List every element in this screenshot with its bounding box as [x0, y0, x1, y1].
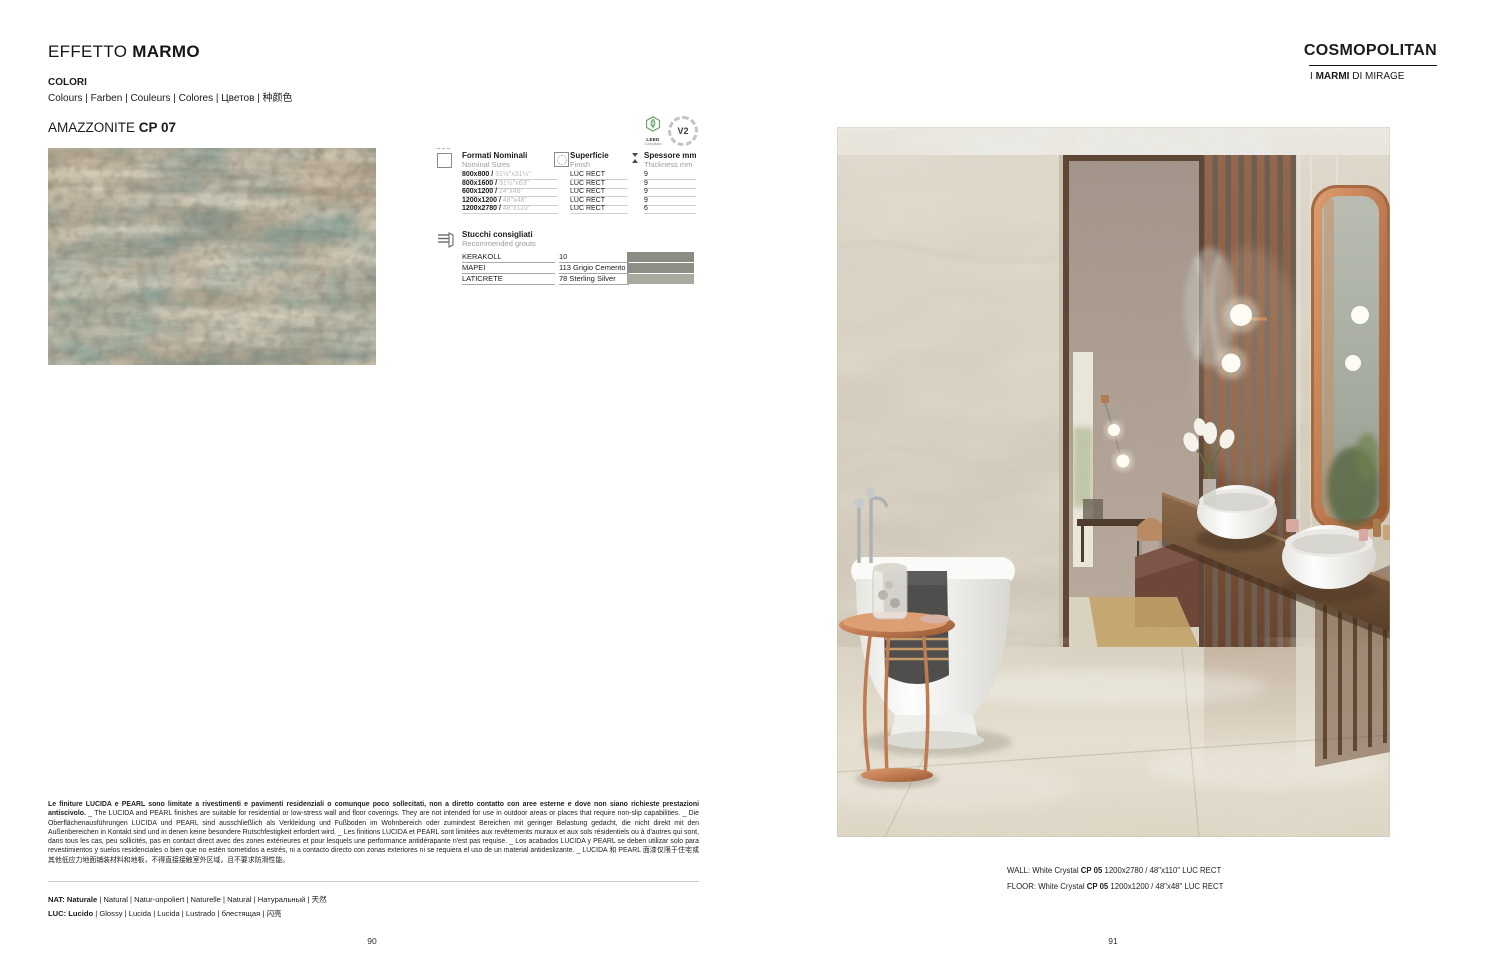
size-in: 48"x110" — [503, 205, 530, 212]
page-number-right: 91 — [1083, 936, 1143, 946]
collection-subtitle: I MARMI DI MIRAGE — [1310, 71, 1404, 82]
size-in: 48"x48" — [503, 197, 527, 204]
legend-luc-bold: LUC: Lucido — [48, 909, 93, 918]
page-title-bold: MARMO — [132, 42, 200, 61]
trowel-icon — [437, 231, 455, 249]
caption-floor-pre: FLOOR: White Crystal — [1007, 882, 1087, 891]
col-sizes-subtitle: Nominal Sizes — [462, 161, 510, 170]
caption-floor-post: 1200x1200 / 48"x48" LUC RECT — [1108, 882, 1223, 891]
size-mm: 800x800 / — [462, 171, 495, 178]
col-thickness-title: Spessore mm — [644, 152, 696, 160]
grout-row: MAPEI 113 Grigio Cemento — [437, 263, 695, 274]
finish-disclaimer: Le finiture LUCIDA e PEARL sono limitate… — [48, 800, 699, 865]
grout-row: LATICRETE 78 Sterling Silver — [437, 274, 695, 285]
grout-color-swatch — [627, 274, 694, 284]
legend-nat-bold: NAT: Naturale — [48, 895, 97, 904]
grout-row: KERAKOLL 10 — [437, 252, 695, 263]
col-thickness-subtitle: Thickness mm — [644, 161, 692, 170]
size-square-icon — [437, 153, 452, 168]
grouts-title: Stucchi consigliati — [462, 231, 533, 239]
thickness: 6 — [644, 205, 696, 214]
legend-nat: NAT: Naturale | Natural | Natur-unpolier… — [48, 893, 699, 907]
sizes-table: Formati Nominali Nominal Sizes Superfici… — [437, 148, 697, 218]
grouts-subtitle: Recommended grouts — [462, 240, 536, 249]
catalog-spread: { "left": { "title_regular": "EFFETTO ",… — [0, 0, 1485, 968]
size-mm: 600x1200 / — [462, 188, 499, 195]
amazzonite-marble-swatch — [48, 148, 376, 365]
caption-wall: WALL: White Crystal CP 05 1200x2780 / 48… — [1007, 863, 1223, 879]
table-row: 1200x1200 / 48"x48" LUC RECT 9 — [437, 197, 697, 206]
col-finish-subtitle: Finish — [570, 161, 590, 170]
caption-wall-code: CP 05 — [1081, 866, 1103, 875]
grout-code: 10 — [559, 252, 629, 263]
photo-grain — [837, 127, 1390, 837]
collection-title: COSMOPOLITAN — [1304, 42, 1437, 60]
finish-legend: NAT: Naturale | Natural | Natur-unpolier… — [48, 893, 699, 921]
marble-texture — [48, 148, 376, 365]
table-row: 800x800 / 31½"x31½" LUC RECT 9 — [437, 171, 697, 180]
v2-badge: V2 — [668, 116, 698, 146]
grout-brand: KERAKOLL — [462, 252, 555, 263]
colori-translations: Colours | Farben | Couleurs | Colores | … — [48, 89, 293, 104]
photo-captions: WALL: White Crystal CP 05 1200x2780 / 48… — [1007, 863, 1223, 895]
product-name: AMAZZONITE CP 07 — [48, 120, 176, 135]
size-in: 31½"x63" — [499, 180, 529, 187]
subtitle-bold: MARMI — [1316, 71, 1350, 82]
page-title-regular: EFFETTO — [48, 42, 132, 61]
legend-divider — [48, 881, 699, 882]
table-row: 800x1600 / 31½"x63" LUC RECT 9 — [437, 180, 697, 189]
grout-color-swatch — [627, 263, 694, 273]
grout-code: 113 Grigio Cemento — [559, 263, 629, 274]
measure-dash-icon — [437, 148, 450, 149]
subtitle-post: DI MIRAGE — [1349, 71, 1404, 82]
col-finish-title: Superficie — [570, 152, 609, 160]
colori-label: COLORI — [48, 77, 87, 88]
caption-wall-post: 1200x2780 / 48"x110" LUC RECT — [1102, 866, 1221, 875]
page-title: EFFETTO MARMO — [48, 42, 200, 62]
size-mm: 1200x2780 / — [462, 205, 503, 212]
legend-luc: LUC: Lucido | Glossy | Lucida | Lucida |… — [48, 907, 699, 921]
v2-label: V2 — [677, 126, 688, 136]
collection-title-rule — [1309, 65, 1437, 66]
grout-brand: LATICRETE — [462, 274, 555, 285]
product-code: CP 07 — [139, 120, 176, 135]
caption-floor-code: CP 05 — [1087, 882, 1109, 891]
caption-wall-pre: WALL: White Crystal — [1007, 866, 1081, 875]
bathroom-scene — [837, 127, 1390, 837]
finish: LUC RECT — [570, 205, 628, 214]
finish-circle-icon — [554, 152, 569, 167]
page-number-left: 90 — [342, 936, 402, 946]
grout-brand: MAPEI — [462, 263, 555, 274]
grout-code: 78 Sterling Silver — [559, 274, 629, 285]
grout-color-swatch — [627, 252, 694, 262]
size-in: 31½"x31½" — [495, 171, 531, 178]
bathroom-ambient-photo — [837, 127, 1390, 837]
caption-floor: FLOOR: White Crystal CP 05 1200x1200 / 4… — [1007, 879, 1223, 895]
leed-badge: LEED Compliant — [641, 116, 665, 146]
table-row: 600x1200 / 24"x48" LUC RECT 9 — [437, 188, 697, 197]
col-sizes-title: Formati Nominali — [462, 152, 527, 160]
legend-nat-rest: | Natural | Natur-unpoliert | Naturelle … — [97, 895, 326, 904]
size-in: 24"x48" — [499, 188, 523, 195]
size-mm: 1200x1200 / — [462, 197, 503, 204]
thickness-caliper-icon — [632, 153, 638, 163]
disclaimer-rest: _ The LUCIDA and PEARL finishes are suit… — [48, 810, 699, 863]
product-name-text: AMAZZONITE — [48, 120, 139, 135]
legend-luc-rest: | Glossy | Lucida | Lucida | Lustrado | … — [93, 909, 282, 918]
leed-hexagon-leaf-icon — [645, 116, 661, 132]
table-row: 1200x2780 / 48"x110" LUC RECT 6 — [437, 205, 697, 214]
leed-sublabel: Compliant — [641, 142, 665, 146]
size-mm: 800x1600 / — [462, 180, 499, 187]
